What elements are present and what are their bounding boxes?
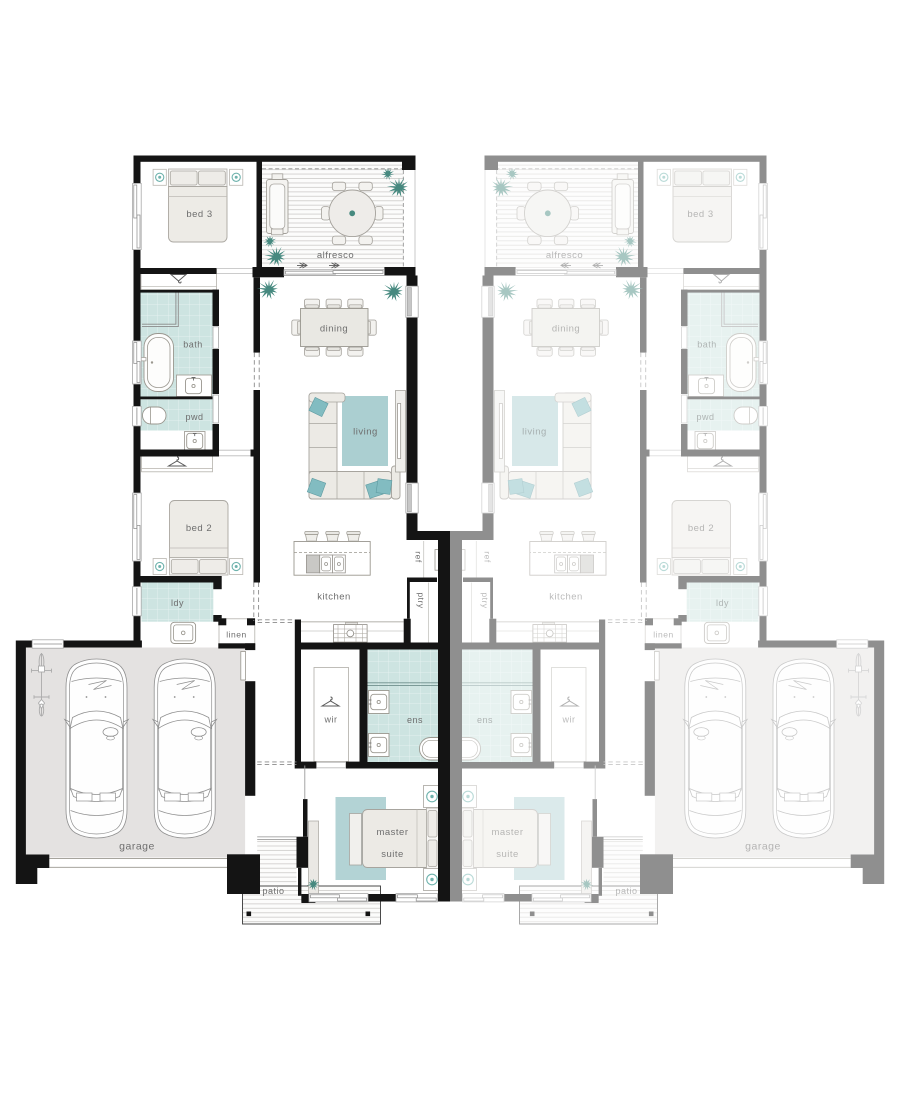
- svg-text:bath: bath: [697, 340, 717, 350]
- svg-text:bath: bath: [183, 340, 203, 350]
- svg-text:ens: ens: [407, 715, 423, 725]
- svg-text:bed 2: bed 2: [186, 523, 212, 534]
- svg-text:kitchen: kitchen: [317, 592, 351, 603]
- svg-text:wir: wir: [562, 715, 576, 725]
- svg-text:living: living: [353, 427, 378, 438]
- svg-text:bed 2: bed 2: [688, 523, 714, 534]
- svg-text:pwd: pwd: [185, 412, 203, 422]
- svg-text:alfresco: alfresco: [317, 250, 354, 261]
- svg-text:suite: suite: [381, 849, 404, 860]
- svg-text:garage: garage: [119, 841, 155, 853]
- svg-text:dining: dining: [552, 324, 580, 335]
- svg-text:patio: patio: [262, 886, 284, 896]
- svg-text:dining: dining: [320, 324, 348, 335]
- svg-text:garage: garage: [745, 841, 781, 853]
- svg-text:patio: patio: [615, 886, 637, 896]
- svg-text:master: master: [491, 827, 523, 838]
- svg-text:ref: ref: [414, 551, 424, 563]
- svg-text:ref: ref: [483, 551, 493, 563]
- svg-text:ldy: ldy: [171, 598, 184, 608]
- svg-text:ptry: ptry: [480, 592, 490, 608]
- svg-text:ptry: ptry: [416, 592, 426, 608]
- svg-text:kitchen: kitchen: [549, 592, 583, 603]
- svg-text:ldy: ldy: [716, 598, 729, 608]
- svg-text:wir: wir: [324, 715, 338, 725]
- svg-text:linen: linen: [653, 630, 673, 640]
- svg-text:living: living: [522, 427, 547, 438]
- svg-text:alfresco: alfresco: [546, 250, 583, 261]
- svg-text:pwd: pwd: [696, 412, 714, 422]
- svg-text:master: master: [376, 827, 408, 838]
- svg-text:bed 3: bed 3: [186, 209, 212, 220]
- svg-text:ens: ens: [477, 715, 493, 725]
- svg-text:bed 3: bed 3: [687, 209, 713, 220]
- svg-text:suite: suite: [496, 849, 519, 860]
- svg-text:linen: linen: [226, 630, 246, 640]
